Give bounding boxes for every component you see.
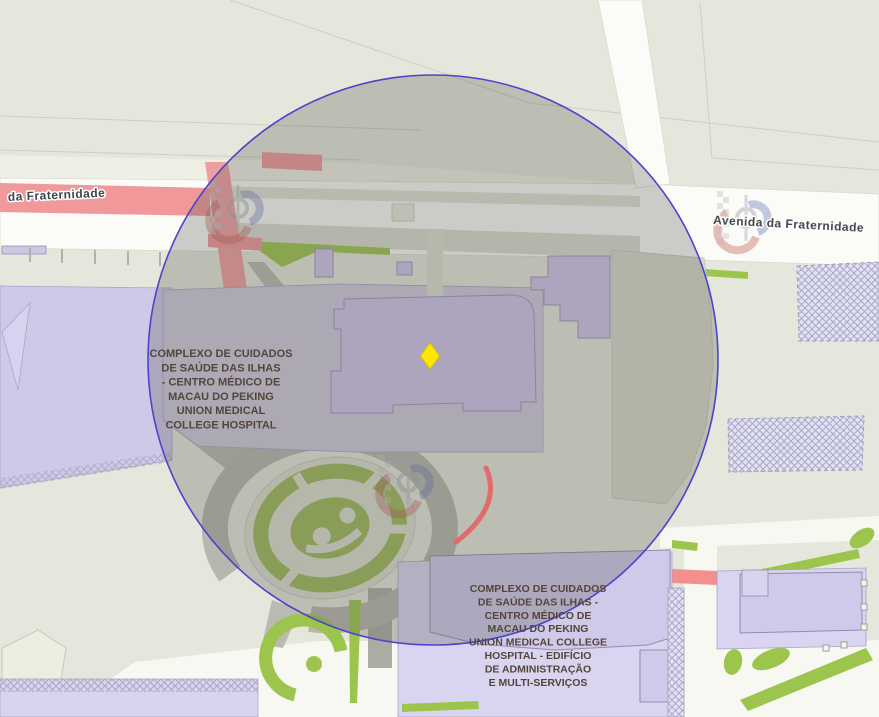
svg-text:UNION MEDICAL: UNION MEDICAL	[177, 405, 266, 417]
poi-label-hospital-admin: COMPLEXO DE CUIDADOS DE SAÚDE DAS ILHAS …	[469, 583, 607, 689]
svg-text:DE SAÚDE DAS ILHAS -: DE SAÚDE DAS ILHAS -	[478, 595, 599, 608]
map-viewport[interactable]: da Fraternidade Avenida da Fraternidade …	[0, 0, 879, 717]
svg-text:COLLEGE HOSPITAL: COLLEGE HOSPITAL	[165, 420, 276, 432]
svg-text:E MULTI-SERVIÇOS: E MULTI-SERVIÇOS	[489, 677, 588, 689]
svg-text:MACAU DO PEKING: MACAU DO PEKING	[488, 623, 589, 635]
bus-shelter	[2, 246, 46, 254]
svg-text:CENTRO MÉDICO DE: CENTRO MÉDICO DE	[485, 609, 592, 622]
map-canvas[interactable]: da Fraternidade Avenida da Fraternidade …	[0, 0, 879, 717]
svg-text:DE ADMINISTRAÇÃO: DE ADMINISTRAÇÃO	[485, 662, 591, 675]
svg-text:DE SAÚDE DAS ILHAS: DE SAÚDE DAS ILHAS	[161, 361, 280, 374]
svg-text:- CENTRO MÉDICO DE: - CENTRO MÉDICO DE	[162, 376, 281, 389]
svg-text:UNION MEDICAL COLLEGE: UNION MEDICAL COLLEGE	[469, 637, 607, 649]
svg-text:MACAU DO PEKING: MACAU DO PEKING	[168, 391, 274, 403]
road-between-buildings	[684, 545, 717, 655]
svg-text:COMPLEXO DE CUIDADOS: COMPLEXO DE CUIDADOS	[149, 348, 292, 360]
svg-text:HOSPITAL - EDIFÍCIO: HOSPITAL - EDIFÍCIO	[485, 649, 592, 662]
svg-text:COMPLEXO DE CUIDADOS: COMPLEXO DE CUIDADOS	[470, 583, 607, 595]
